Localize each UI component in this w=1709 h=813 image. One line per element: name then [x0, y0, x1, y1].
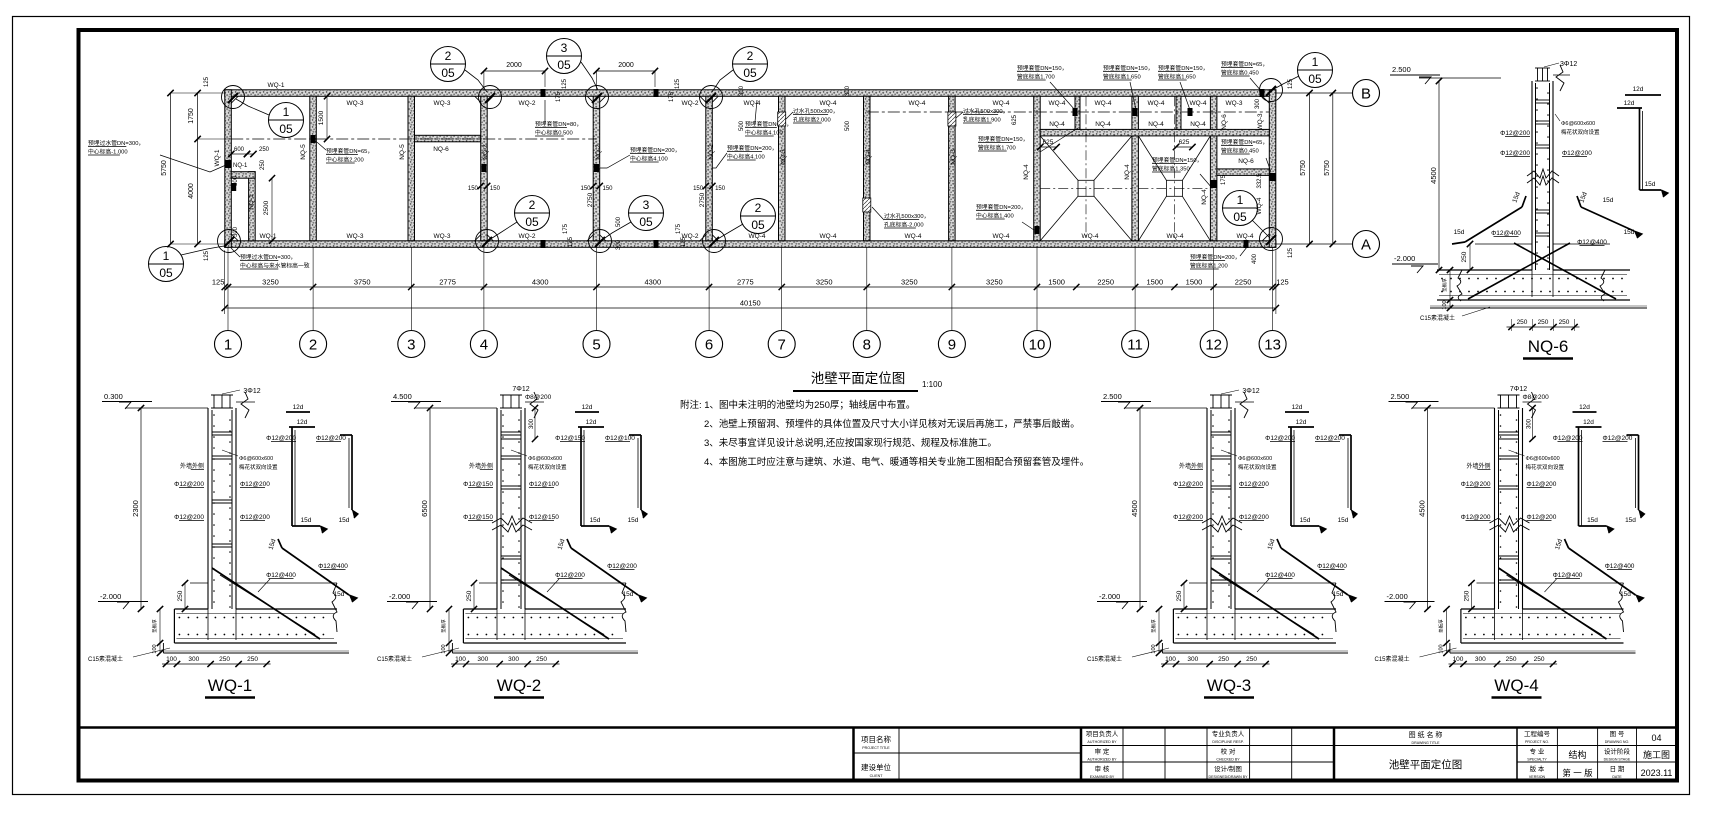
- svg-text:8: 8: [863, 337, 871, 354]
- svg-text:外墙外侧: 外墙外侧: [180, 462, 204, 470]
- svg-text:Φ12@200: Φ12@200: [1527, 481, 1557, 488]
- svg-text:NQ-6: NQ-6: [1221, 114, 1228, 130]
- svg-text:2: 2: [529, 198, 536, 212]
- svg-text:NQ-4: NQ-4: [1124, 164, 1131, 180]
- svg-text:1: 1: [163, 249, 170, 263]
- svg-text:垫板厚: 垫板厚: [1150, 619, 1157, 633]
- svg-text:VERSION: VERSION: [1529, 775, 1546, 779]
- svg-text:梅花状双向设置: 梅花状双向设置: [528, 463, 567, 471]
- svg-text:1: 1: [1237, 193, 1244, 207]
- svg-text:9: 9: [948, 337, 956, 354]
- svg-text:Φ12@100: Φ12@100: [529, 481, 559, 488]
- svg-text:Φ12@400: Φ12@400: [318, 563, 348, 570]
- svg-text:池壁平面定位图: 池壁平面定位图: [1389, 758, 1463, 771]
- svg-text:WQ-2: WQ-2: [682, 100, 699, 107]
- svg-text:250: 250: [1464, 590, 1471, 601]
- svg-text:4: 4: [480, 337, 488, 354]
- svg-text:12d: 12d: [1579, 404, 1590, 411]
- svg-text:WQ-4: WQ-4: [1256, 197, 1263, 214]
- svg-text:1500: 1500: [318, 110, 325, 125]
- svg-text:3250: 3250: [901, 278, 918, 287]
- svg-text:预埋套管DN=65，: 预埋套管DN=65，: [326, 147, 373, 155]
- svg-text:WQ-4: WQ-4: [1082, 233, 1099, 240]
- svg-text:Φ6@600x600: Φ6@600x600: [1238, 456, 1272, 462]
- svg-text:Φ12@150: Φ12@150: [463, 514, 493, 521]
- svg-text:梅花状双向设置: 梅花状双向设置: [1561, 128, 1600, 136]
- svg-text:2: 2: [309, 337, 317, 354]
- svg-text:管底标高1.700: 管底标高1.700: [1017, 73, 1055, 81]
- svg-text:10: 10: [1029, 337, 1046, 354]
- svg-text:管底标高0.450: 管底标高0.450: [1221, 69, 1259, 77]
- svg-text:Φ12@200: Φ12@200: [1239, 514, 1269, 521]
- svg-text:250: 250: [219, 656, 230, 663]
- svg-text:中心标高1.400: 中心标高1.400: [976, 212, 1014, 220]
- svg-text:125: 125: [1288, 247, 1294, 258]
- svg-text:Φ6@600x600: Φ6@600x600: [239, 456, 273, 462]
- svg-text:1: 1: [283, 105, 290, 119]
- svg-text:250: 250: [1218, 656, 1229, 663]
- svg-text:管底标高0.450: 管底标高0.450: [1221, 147, 1259, 155]
- svg-text:05: 05: [743, 66, 757, 80]
- svg-text:预埋套管DN=150，: 预埋套管DN=150，: [1152, 156, 1202, 164]
- svg-text:1: 1: [224, 337, 232, 354]
- svg-text:125: 125: [204, 250, 210, 261]
- svg-text:Φ12@400: Φ12@400: [266, 572, 296, 579]
- svg-text:3750: 3750: [354, 278, 371, 287]
- svg-text:150: 150: [715, 186, 726, 192]
- svg-text:2250: 2250: [1235, 278, 1252, 287]
- svg-text:Φ12@100: Φ12@100: [605, 435, 635, 442]
- svg-text:垫板厚: 垫板厚: [1438, 619, 1445, 633]
- svg-text:WQ-3: WQ-3: [347, 233, 364, 240]
- svg-text:05: 05: [639, 215, 653, 229]
- svg-text:4.500: 4.500: [393, 392, 412, 401]
- svg-text:2250: 2250: [1097, 278, 1114, 287]
- svg-text:WQ-1: WQ-1: [268, 82, 285, 89]
- svg-text:WQ-3: WQ-3: [1257, 113, 1264, 130]
- svg-text:3250: 3250: [262, 278, 279, 287]
- svg-text:15d: 15d: [1300, 517, 1311, 524]
- svg-text:预埋套管DN=200，: 预埋套管DN=200，: [1190, 253, 1240, 261]
- svg-text:设计/制图: 设计/制图: [1214, 764, 1242, 773]
- svg-text:C15素混凝土: C15素混凝土: [1087, 655, 1122, 663]
- svg-text:175: 175: [556, 91, 562, 102]
- svg-text:2.500: 2.500: [1392, 65, 1411, 74]
- svg-text:管底标高1.200: 管底标高1.200: [1190, 262, 1228, 270]
- svg-text:预埋过水管DN=300，: 预埋过水管DN=300，: [240, 253, 296, 261]
- svg-text:DESIGNED/DRAWN BY: DESIGNED/DRAWN BY: [1208, 775, 1248, 779]
- svg-text:6500: 6500: [420, 500, 429, 517]
- svg-text:3、未尽事宜详见设计总说明,还应按国家现行规范、规程及标准施: 3、未尽事宜详见设计总说明,还应按国家现行规范、规程及标准施工。: [704, 437, 997, 449]
- svg-text:300: 300: [1255, 98, 1261, 109]
- svg-text:Φ8@200: Φ8@200: [525, 394, 552, 401]
- svg-text:设计阶段: 设计阶段: [1604, 747, 1631, 756]
- svg-text:2.500: 2.500: [1103, 392, 1122, 401]
- svg-text:DRAWING TITLE: DRAWING TITLE: [1412, 741, 1441, 745]
- svg-text:300: 300: [616, 239, 622, 250]
- svg-text:垫板厚: 垫板厚: [151, 619, 158, 633]
- svg-text:300: 300: [477, 656, 488, 663]
- svg-text:A: A: [1361, 237, 1371, 254]
- svg-text:15d: 15d: [1603, 197, 1614, 204]
- svg-text:2775: 2775: [439, 278, 456, 287]
- svg-text:-2.000: -2.000: [1099, 592, 1120, 601]
- svg-text:NQ-6: NQ-6: [433, 146, 449, 153]
- svg-text:梅花状双向设置: 梅花状双向设置: [239, 463, 278, 471]
- svg-text:WQ-3: WQ-3: [434, 100, 451, 107]
- svg-text:项目负责人: 项目负责人: [1086, 729, 1119, 738]
- svg-text:-2.000: -2.000: [1387, 592, 1408, 601]
- svg-text:300: 300: [1187, 656, 1198, 663]
- svg-text:梅花状双向设置: 梅花状双向设置: [1526, 463, 1565, 471]
- svg-text:250: 250: [536, 656, 547, 663]
- svg-text:NQ-1: NQ-1: [248, 194, 255, 210]
- svg-text:12d: 12d: [1583, 419, 1594, 426]
- svg-text:预埋套管DN=200，: 预埋套管DN=200，: [976, 203, 1026, 211]
- svg-text:校 对: 校 对: [1221, 747, 1236, 756]
- svg-text:NQ-6: NQ-6: [1528, 337, 1569, 356]
- svg-text:250: 250: [1559, 319, 1570, 326]
- svg-text:NQ-5: NQ-5: [399, 144, 406, 160]
- svg-text:孔底标高2.000: 孔底标高2.000: [793, 116, 831, 124]
- svg-text:乳底标高1.900: 乳底标高1.900: [963, 116, 1001, 124]
- svg-text:15d: 15d: [339, 517, 350, 524]
- svg-text:150: 150: [468, 186, 479, 192]
- svg-text:审 定: 审 定: [1095, 747, 1110, 756]
- svg-text:1:100: 1:100: [922, 380, 943, 389]
- svg-text:04: 04: [1651, 733, 1661, 743]
- svg-text:Φ12@200: Φ12@200: [1500, 150, 1530, 157]
- svg-text:2775: 2775: [737, 278, 754, 287]
- svg-text:5750: 5750: [1324, 160, 1331, 176]
- svg-text:2000: 2000: [506, 62, 522, 69]
- svg-text:150: 150: [490, 186, 501, 192]
- svg-text:15d: 15d: [1620, 591, 1631, 598]
- svg-text:WQ-2: WQ-2: [519, 233, 536, 240]
- svg-text:预埋套管DN=150，: 预埋套管DN=150，: [978, 135, 1028, 143]
- svg-text:WQ-1: WQ-1: [208, 676, 252, 695]
- svg-text:中心标高2.200: 中心标高2.200: [326, 156, 364, 164]
- svg-text:12d: 12d: [586, 419, 597, 426]
- svg-text:Φ12@400: Φ12@400: [1553, 572, 1583, 579]
- svg-text:建设单位: 建设单位: [861, 762, 891, 772]
- svg-text:图 号: 图 号: [1610, 730, 1625, 738]
- svg-text:15d: 15d: [1645, 181, 1656, 188]
- svg-text:1500: 1500: [1186, 278, 1203, 287]
- svg-text:6: 6: [705, 337, 713, 354]
- svg-text:NQ-6: NQ-6: [1238, 158, 1254, 165]
- svg-text:500: 500: [739, 120, 745, 131]
- svg-text:300: 300: [1527, 418, 1533, 429]
- svg-text:Φ12@200: Φ12@200: [1315, 435, 1345, 442]
- svg-text:PROJECT TITLE: PROJECT TITLE: [862, 746, 890, 750]
- svg-text:3250: 3250: [816, 278, 833, 287]
- svg-text:中心标高0.500: 中心标高0.500: [535, 129, 573, 137]
- svg-text:5750: 5750: [161, 160, 168, 176]
- svg-text:CLIENT: CLIENT: [870, 774, 884, 778]
- svg-text:12d: 12d: [582, 404, 593, 411]
- svg-text:4300: 4300: [532, 278, 549, 287]
- svg-text:结构: 结构: [1568, 749, 1586, 760]
- svg-text:过水孔500x300，: 过水孔500x300，: [963, 107, 1008, 115]
- svg-text:7Φ12: 7Φ12: [512, 386, 529, 393]
- svg-text:WQ-4: WQ-4: [744, 100, 761, 107]
- svg-text:4、本图施工时应注意与建筑、水道、电气、暖通等相关专业施工图: 4、本图施工时应注意与建筑、水道、电气、暖通等相关专业施工图相配合预留套管及埋件…: [704, 456, 1089, 468]
- svg-text:125: 125: [568, 236, 574, 247]
- svg-text:C15素混凝土: C15素混凝土: [377, 655, 412, 663]
- svg-text:NQ-2: NQ-2: [482, 144, 489, 160]
- svg-text:版 本: 版 本: [1530, 764, 1545, 773]
- svg-text:3: 3: [643, 198, 650, 212]
- svg-text:15d: 15d: [301, 517, 312, 524]
- svg-text:Φ12@200: Φ12@200: [266, 435, 296, 442]
- svg-text:5750: 5750: [1300, 160, 1307, 176]
- svg-text:施工图: 施工图: [1643, 749, 1670, 760]
- svg-text:05: 05: [279, 122, 293, 136]
- svg-text:2300: 2300: [131, 500, 140, 517]
- svg-text:过水孔500x300，: 过水孔500x300，: [793, 107, 838, 115]
- svg-text:外墙外侧: 外墙外侧: [1466, 462, 1490, 470]
- svg-text:AUTHORIZED BY: AUTHORIZED BY: [1087, 758, 1117, 762]
- svg-text:C15素混凝土: C15素混凝土: [1375, 655, 1410, 663]
- svg-text:12d: 12d: [1296, 419, 1307, 426]
- svg-text:DESIGN STAGE: DESIGN STAGE: [1604, 758, 1631, 762]
- svg-text:125: 125: [675, 78, 681, 89]
- svg-text:WQ-4: WQ-4: [1167, 233, 1184, 240]
- svg-text:250: 250: [177, 590, 184, 601]
- svg-text:250: 250: [1506, 656, 1517, 663]
- svg-text:NQ-2: NQ-2: [595, 144, 602, 160]
- svg-text:图 纸 名 称: 图 纸 名 称: [1409, 730, 1443, 739]
- svg-text:100: 100: [455, 656, 466, 663]
- svg-text:管底标高1.650: 管底标高1.650: [1103, 73, 1141, 81]
- svg-text:预埋套管DN=65，: 预埋套管DN=65，: [1221, 138, 1268, 146]
- svg-text:250: 250: [1176, 590, 1183, 601]
- svg-text:300: 300: [188, 656, 199, 663]
- svg-text:AUTHORIZED BY: AUTHORIZED BY: [1087, 740, 1117, 744]
- svg-text:WQ-3: WQ-3: [434, 233, 451, 240]
- svg-text:预埋套管DN=200，: 预埋套管DN=200，: [727, 144, 777, 152]
- svg-text:300: 300: [233, 226, 239, 237]
- svg-text:250: 250: [1461, 251, 1468, 262]
- svg-text:500: 500: [845, 120, 851, 131]
- svg-text:Φ6@600x600: Φ6@600x600: [1561, 121, 1595, 127]
- svg-text:Φ12@200: Φ12@200: [174, 514, 204, 521]
- svg-text:125: 125: [212, 278, 225, 287]
- svg-text:WQ-2: WQ-2: [519, 100, 536, 107]
- svg-text:梅花状双向设置: 梅花状双向设置: [1238, 463, 1277, 471]
- svg-text:专业负责人: 专业负责人: [1212, 729, 1245, 738]
- svg-text:NQ-4: NQ-4: [1148, 121, 1164, 128]
- svg-text:3Φ12: 3Φ12: [1560, 61, 1577, 68]
- svg-text:15d: 15d: [1454, 229, 1465, 236]
- svg-text:NQ-3: NQ-3: [950, 149, 957, 165]
- svg-text:300: 300: [1475, 656, 1486, 663]
- svg-text:175: 175: [669, 91, 675, 102]
- svg-text:CHECKED BY: CHECKED BY: [1216, 758, 1240, 762]
- svg-text:Φ12@400: Φ12@400: [1577, 239, 1607, 246]
- svg-text:Φ6@600x600: Φ6@600x600: [528, 456, 562, 462]
- svg-text:Φ12@200: Φ12@200: [1173, 481, 1203, 488]
- svg-text:15d: 15d: [628, 517, 639, 524]
- svg-text:NQ-4: NQ-4: [1190, 121, 1206, 128]
- svg-text:2: 2: [755, 201, 762, 215]
- svg-text:WQ-4: WQ-4: [820, 100, 837, 107]
- svg-text:125: 125: [204, 76, 210, 87]
- svg-text:100: 100: [1442, 300, 1448, 309]
- svg-text:Φ12@200: Φ12@200: [1239, 481, 1269, 488]
- svg-text:300: 300: [529, 418, 535, 429]
- svg-text:Φ12@200: Φ12@200: [316, 435, 346, 442]
- svg-text:15d: 15d: [1624, 229, 1635, 236]
- svg-text:WQ-4: WQ-4: [1049, 100, 1066, 107]
- svg-text:管底标高1.650: 管底标高1.650: [1158, 73, 1196, 81]
- svg-text:Φ12@200: Φ12@200: [174, 481, 204, 488]
- svg-text:300: 300: [845, 85, 851, 96]
- svg-text:PROJECT NO.: PROJECT NO.: [1525, 740, 1549, 744]
- svg-text:125: 125: [681, 236, 687, 247]
- svg-text:Φ12@150: Φ12@150: [555, 435, 585, 442]
- svg-text:2000: 2000: [618, 62, 634, 69]
- svg-text:WQ-4: WQ-4: [1190, 100, 1207, 107]
- svg-text:100: 100: [1453, 656, 1464, 663]
- svg-text:WQ-3: WQ-3: [1226, 100, 1243, 107]
- svg-text:WQ-3: WQ-3: [347, 100, 364, 107]
- svg-text:预埋套管DN=65，: 预埋套管DN=65，: [1221, 60, 1268, 68]
- svg-text:垫板厚: 垫板厚: [440, 619, 447, 633]
- svg-text:625: 625: [1043, 139, 1054, 146]
- svg-text:Φ12@400: Φ12@400: [1491, 230, 1521, 237]
- svg-text:Φ12@200: Φ12@200: [1562, 150, 1592, 157]
- svg-text:05: 05: [751, 218, 765, 232]
- svg-text:2750: 2750: [699, 192, 706, 207]
- svg-text:DISCIPLINE RESP.: DISCIPLINE RESP.: [1212, 740, 1243, 744]
- svg-text:预埋套管DN=150，: 预埋套管DN=150，: [1017, 64, 1067, 72]
- svg-text:05: 05: [1233, 210, 1247, 224]
- svg-text:100: 100: [1165, 656, 1176, 663]
- svg-text:4500: 4500: [1418, 500, 1427, 517]
- svg-text:Φ8@200: Φ8@200: [1523, 394, 1550, 401]
- svg-text:Φ12@200: Φ12@200: [1461, 481, 1491, 488]
- svg-text:3: 3: [561, 41, 568, 55]
- svg-text:C15素混凝土: C15素混凝土: [88, 655, 123, 663]
- svg-text:400: 400: [1252, 253, 1258, 264]
- svg-text:1: 1: [1312, 55, 1319, 69]
- svg-text:0.300: 0.300: [104, 392, 123, 401]
- svg-text:NQ-4: NQ-4: [1201, 189, 1208, 205]
- svg-text:Φ12@200: Φ12@200: [555, 572, 585, 579]
- svg-text:2: 2: [445, 49, 452, 63]
- svg-text:WQ-2: WQ-2: [497, 676, 541, 695]
- svg-text:Φ12@400: Φ12@400: [1265, 572, 1295, 579]
- svg-text:WQ-4: WQ-4: [1095, 100, 1112, 107]
- svg-text:日 期: 日 期: [1610, 765, 1625, 773]
- svg-text:Φ12@150: Φ12@150: [529, 514, 559, 521]
- svg-text:-2.000: -2.000: [1394, 254, 1415, 263]
- svg-text:12d: 12d: [293, 404, 304, 411]
- svg-text:NQ-2: NQ-2: [708, 144, 715, 160]
- svg-text:EXAMINED BY: EXAMINED BY: [1090, 775, 1115, 779]
- svg-text:150: 150: [603, 186, 614, 192]
- svg-text:05: 05: [159, 266, 173, 280]
- svg-text:SPECIALTY: SPECIALTY: [1527, 758, 1547, 762]
- svg-text:12d: 12d: [1624, 100, 1635, 107]
- svg-text:预埋过水管DN=300，: 预埋过水管DN=300，: [88, 139, 144, 147]
- svg-text:11: 11: [1127, 337, 1143, 354]
- svg-text:1750: 1750: [188, 108, 195, 124]
- svg-text:250: 250: [1517, 319, 1528, 326]
- svg-text:Φ6@600x600: Φ6@600x600: [1526, 456, 1560, 462]
- svg-text:2500: 2500: [263, 200, 270, 215]
- svg-text:C15素混凝土: C15素混凝土: [1420, 314, 1455, 322]
- svg-text:300: 300: [233, 175, 239, 186]
- svg-text:250: 250: [1538, 319, 1549, 326]
- svg-text:12d: 12d: [297, 419, 308, 426]
- svg-text:4300: 4300: [644, 278, 661, 287]
- svg-text:WQ-4: WQ-4: [905, 233, 922, 240]
- svg-text:250: 250: [1534, 656, 1545, 663]
- svg-text:NQ-4: NQ-4: [1049, 121, 1065, 128]
- svg-text:15d: 15d: [623, 591, 634, 598]
- svg-text:孔底标高-2.000: 孔底标高-2.000: [884, 221, 924, 229]
- svg-text:NQ-5: NQ-5: [300, 144, 307, 160]
- svg-text:15d: 15d: [1625, 517, 1636, 524]
- svg-text:NQ-1: NQ-1: [233, 163, 248, 169]
- svg-text:外墙外侧: 外墙外侧: [1179, 462, 1203, 470]
- svg-text:Φ12@200: Φ12@200: [1461, 514, 1491, 521]
- svg-text:250: 250: [1246, 656, 1257, 663]
- svg-text:250: 250: [247, 656, 258, 663]
- svg-text:中心标高4.100: 中心标高4.100: [727, 153, 765, 161]
- svg-text:预埋套管DN=150，: 预埋套管DN=150，: [1103, 64, 1153, 72]
- svg-text:175: 175: [563, 223, 569, 234]
- svg-text:WQ-4: WQ-4: [993, 233, 1010, 240]
- svg-text:NQ-3: NQ-3: [780, 149, 787, 165]
- svg-text:15d: 15d: [590, 517, 601, 524]
- svg-text:625: 625: [1179, 139, 1190, 146]
- svg-text:Φ12@200: Φ12@200: [240, 514, 270, 521]
- svg-text:250: 250: [260, 159, 266, 170]
- svg-text:2: 2: [747, 49, 754, 63]
- svg-text:NQ-4: NQ-4: [1095, 121, 1111, 128]
- svg-text:池壁平面定位图: 池壁平面定位图: [811, 371, 906, 386]
- svg-text:预埋套管DN=200，: 预埋套管DN=200，: [630, 146, 680, 154]
- svg-text:专 业: 专 业: [1530, 747, 1545, 756]
- svg-text:审 核: 审 核: [1095, 764, 1110, 773]
- svg-text:WQ-4: WQ-4: [1237, 233, 1254, 240]
- svg-text:5: 5: [592, 337, 600, 354]
- svg-text:管底标高1.350: 管底标高1.350: [1152, 165, 1190, 173]
- svg-text:-2.000: -2.000: [100, 592, 121, 601]
- svg-text:1500: 1500: [1048, 278, 1065, 287]
- svg-text:WQ-1: WQ-1: [214, 149, 221, 166]
- svg-text:7Φ12: 7Φ12: [1510, 386, 1527, 393]
- svg-text:300: 300: [508, 656, 519, 663]
- svg-text:2、池壁上预留洞、预埋件的具体位置及尺寸大小详见核对无误后再: 2、池壁上预留洞、预埋件的具体位置及尺寸大小详见核对无误后再施工，严禁事后敲凿。: [704, 418, 1080, 430]
- svg-text:125: 125: [1276, 278, 1289, 287]
- svg-text:150: 150: [693, 186, 704, 192]
- svg-text:第 一 版: 第 一 版: [1562, 768, 1593, 778]
- svg-text:125: 125: [562, 78, 568, 89]
- svg-text:Φ12@200: Φ12@200: [1265, 435, 1295, 442]
- svg-text:NQ-4: NQ-4: [1023, 164, 1030, 180]
- svg-text:WQ-4: WQ-4: [1494, 676, 1538, 695]
- svg-text:4000: 4000: [188, 183, 195, 199]
- svg-text:12d: 12d: [1292, 404, 1303, 411]
- svg-text:4500: 4500: [1130, 500, 1139, 517]
- svg-text:WQ-4: WQ-4: [820, 233, 837, 240]
- svg-text:Φ12@200: Φ12@200: [1500, 130, 1530, 137]
